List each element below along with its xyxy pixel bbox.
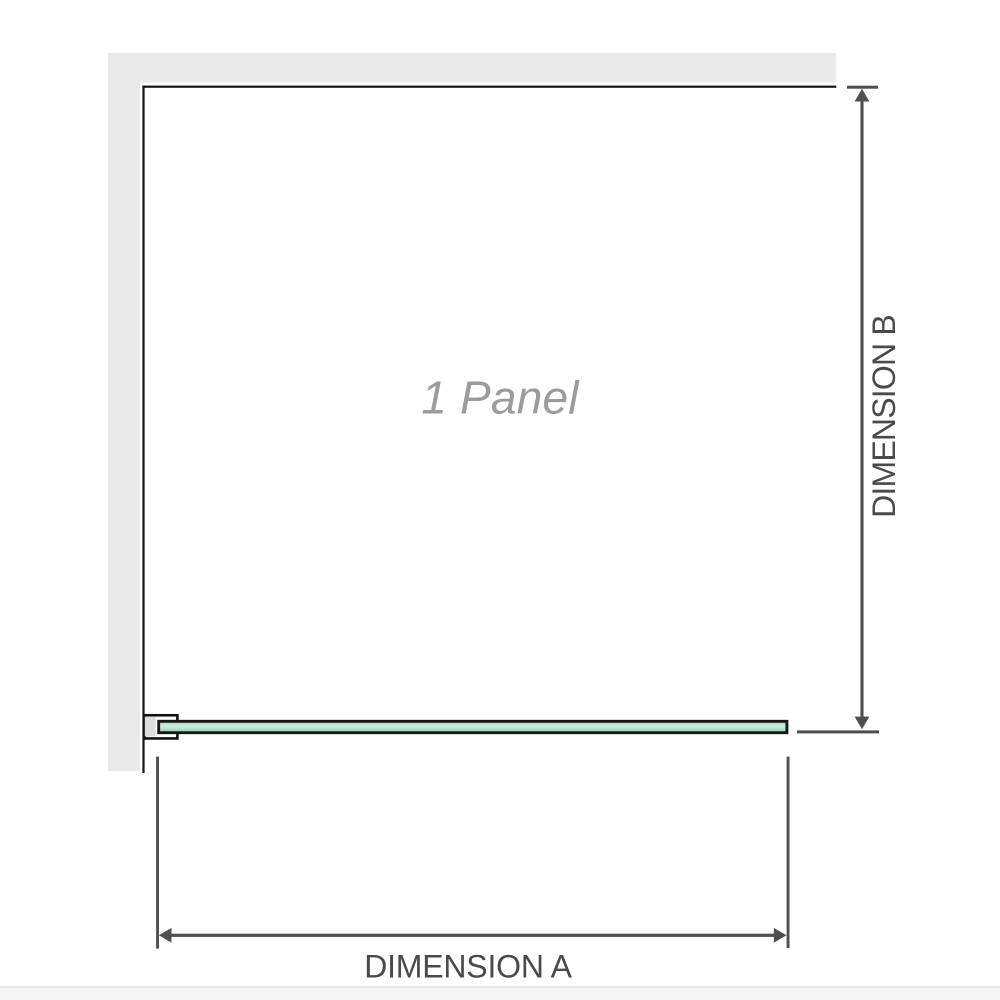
svg-text:1 Panel: 1 Panel	[421, 372, 580, 424]
svg-text:DIMENSION B: DIMENSION B	[866, 315, 902, 518]
svg-text:DIMENSION A: DIMENSION A	[364, 949, 572, 985]
